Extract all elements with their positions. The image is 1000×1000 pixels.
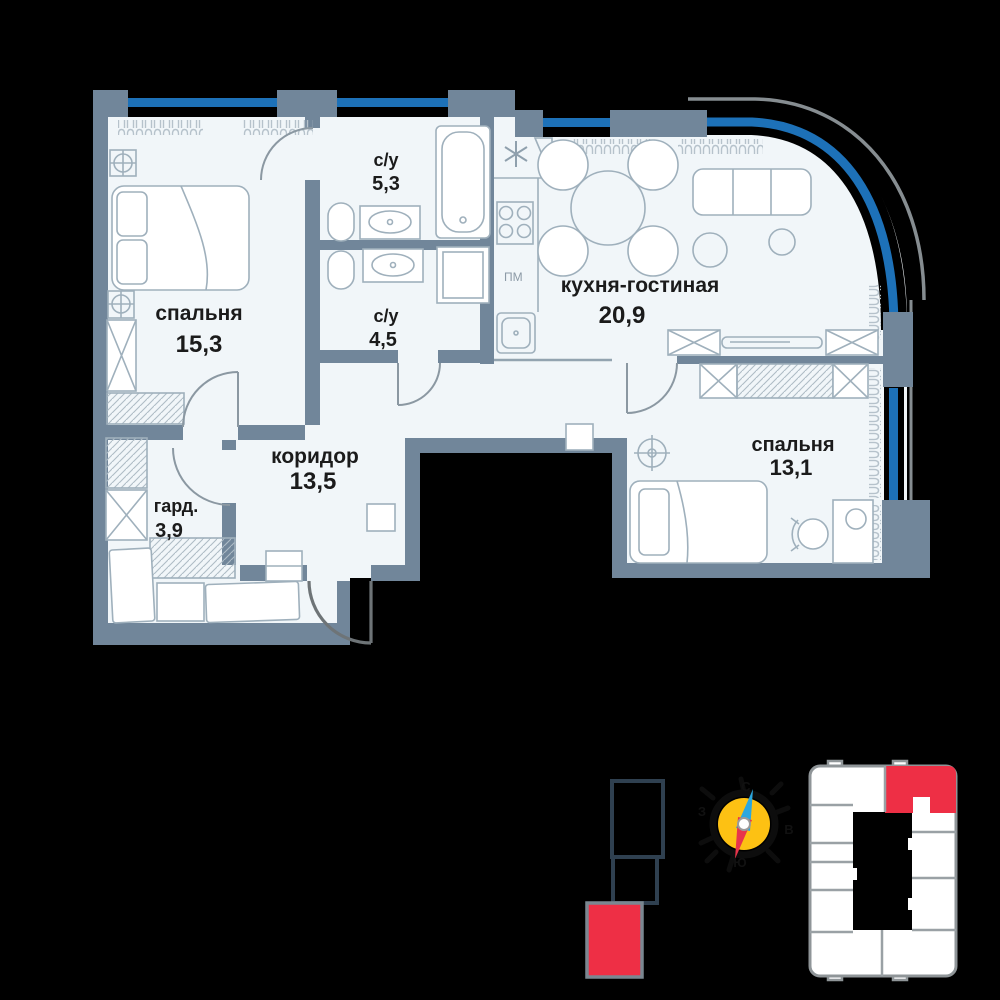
radiator [243, 120, 313, 135]
window-glazing [337, 98, 448, 107]
wardrobe [737, 364, 833, 398]
core-notch [420, 453, 612, 578]
compass-north-label: С [741, 779, 751, 794]
svg-text:4,5: 4,5 [369, 329, 397, 351]
toilet [328, 251, 354, 289]
pillow [117, 192, 147, 236]
section-diagram [587, 781, 663, 977]
svg-text:гард.: гард. [154, 496, 198, 516]
window-glazing [128, 98, 277, 107]
floor-plan: ПМ [0, 0, 1000, 1000]
pillow [117, 240, 147, 284]
compass-icon: С В Ю З [698, 779, 794, 870]
wardrobe [107, 393, 184, 424]
cabinet [205, 581, 299, 622]
compass-east-label: В [784, 822, 793, 837]
compass-west-label: З [698, 804, 706, 819]
svg-text:коридор: коридор [271, 445, 359, 468]
svg-text:с/у: с/у [373, 306, 398, 326]
building-key-plan [810, 761, 956, 980]
svg-text:спальня: спальня [751, 434, 834, 456]
floor-plan-svg: ПМ [0, 0, 1000, 1000]
toilet [328, 203, 354, 241]
cabinet [109, 548, 155, 623]
svg-text:спальня: спальня [155, 302, 242, 325]
radiator [869, 368, 881, 498]
wardrobe [150, 538, 235, 578]
window-glazing [889, 388, 898, 501]
room-label-bathroom-1: с/у 5,3 [372, 150, 400, 195]
svg-text:13,1: 13,1 [770, 455, 813, 480]
svg-text:кухня-гостиная: кухня-гостиная [561, 274, 720, 297]
svg-text:с/у: с/у [373, 150, 398, 170]
dishwasher-label: ПМ [504, 270, 523, 284]
pillow [639, 489, 669, 555]
room-label-bathroom-2: с/у 4,5 [369, 306, 398, 351]
svg-text:20,9: 20,9 [599, 302, 646, 329]
wardrobe [106, 438, 147, 488]
dining-table [571, 171, 645, 245]
courtyard [853, 812, 912, 930]
electric-panel [566, 424, 593, 450]
electric-panel [367, 504, 395, 531]
svg-text:5,3: 5,3 [372, 173, 400, 195]
svg-text:3,9: 3,9 [155, 520, 183, 542]
svg-text:15,3: 15,3 [176, 331, 223, 358]
radiator [678, 139, 763, 154]
compass-south-label: Ю [733, 855, 746, 870]
cabinet [157, 583, 204, 621]
sofa [693, 169, 811, 215]
washing-machine [437, 247, 489, 303]
bathtub [436, 126, 490, 238]
highlighted-section [587, 903, 642, 977]
svg-text:13,5: 13,5 [290, 468, 337, 495]
radiator [118, 120, 203, 135]
window-glazing [543, 118, 610, 127]
